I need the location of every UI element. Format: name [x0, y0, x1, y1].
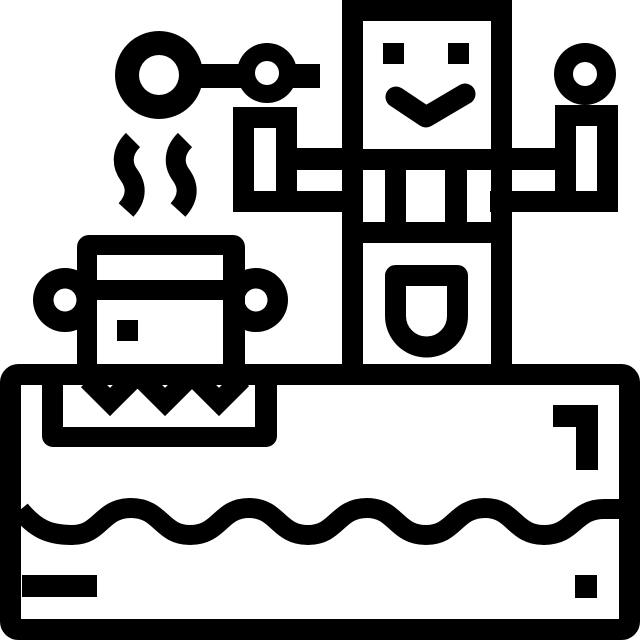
pot-lower-gap: [97, 300, 223, 366]
robot-smile: [396, 94, 465, 117]
left-arm-band: [233, 191, 362, 212]
steam-icon: [124, 140, 187, 210]
corner-hook-mark: [553, 405, 598, 470]
torso-stripe-left: [385, 170, 406, 223]
robot-pocket: [396, 276, 458, 348]
robot-cooking-illustration: Black outline pictogram of a smiling rob…: [0, 0, 640, 640]
ladle-spoon-icon: [115, 31, 320, 119]
icon-stage: Black outline pictogram of a smiling rob…: [0, 0, 640, 640]
pot-handle-left-hole: [54, 289, 77, 312]
water-wave-icon: [20, 508, 624, 535]
right-arm-band: [490, 191, 618, 212]
left-arm-outline: [244, 118, 287, 202]
cooking-pot-icon: [33, 235, 288, 385]
ladle-bowl-hole: [139, 55, 179, 95]
dash-mark: [22, 575, 97, 597]
pot-handle-right-hole: [245, 289, 268, 312]
shoulder-bar-right: [511, 148, 556, 170]
robot-head-outline: [353, 11, 502, 160]
pot-dot: [117, 320, 138, 341]
square-dot-mark: [575, 575, 597, 598]
right-arm-outline: [566, 116, 608, 202]
robot-eye-right: [448, 43, 469, 64]
robot-eye-left: [383, 43, 404, 64]
counter-icon: [11, 370, 630, 630]
torso-stripe-right: [445, 170, 467, 223]
steam-squiggle-right: [176, 140, 187, 210]
shoulder-bar-left: [296, 148, 343, 170]
right-hand-ring-hole: [573, 62, 597, 86]
pot-lid-gap: [97, 255, 223, 280]
steam-squiggle-left: [124, 140, 135, 210]
left-hand-ring-hole: [255, 61, 279, 85]
hip-bar: [342, 222, 512, 243]
